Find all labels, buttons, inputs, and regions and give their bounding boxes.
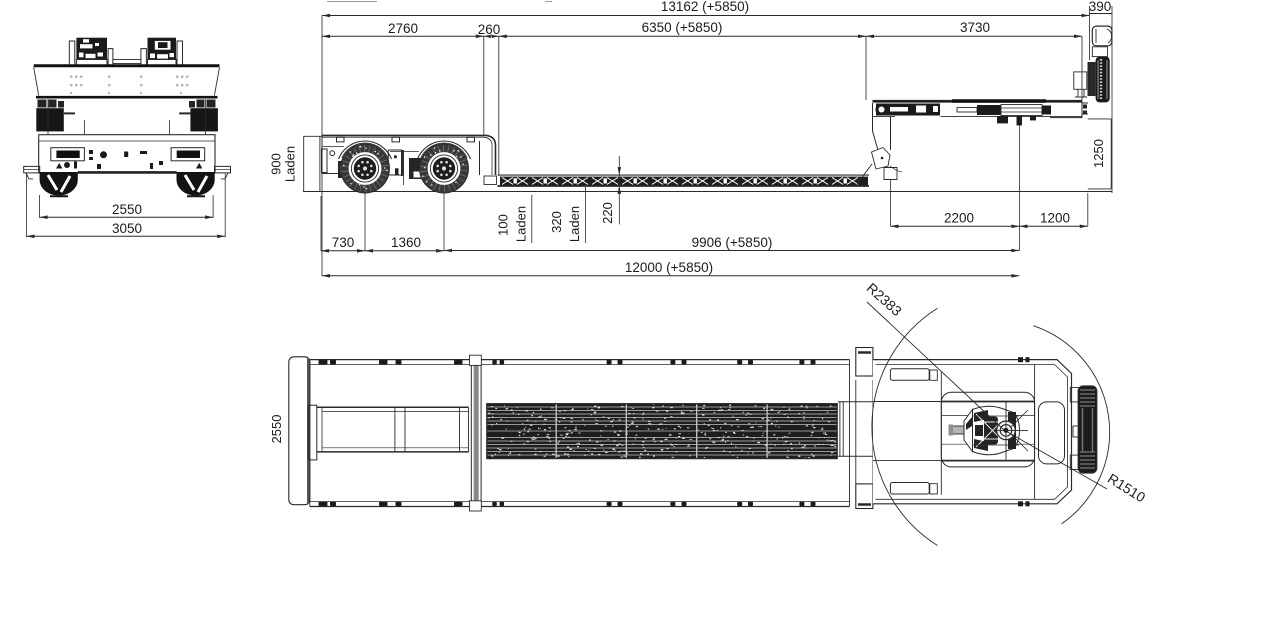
svg-text:100: 100 bbox=[496, 214, 511, 236]
svg-text:2760: 2760 bbox=[388, 21, 418, 36]
svg-text:320: 320 bbox=[549, 211, 564, 233]
svg-text:6350 (+5850): 6350 (+5850) bbox=[642, 20, 723, 35]
svg-text:1200: 1200 bbox=[1040, 211, 1070, 226]
svg-text:13162 (+5850): 13162 (+5850) bbox=[661, 0, 749, 14]
svg-text:Laden: Laden bbox=[567, 206, 582, 242]
svg-text:2200: 2200 bbox=[944, 211, 974, 226]
svg-text:2550: 2550 bbox=[269, 415, 284, 444]
svg-text:1360: 1360 bbox=[391, 235, 421, 250]
svg-text:730: 730 bbox=[332, 235, 355, 250]
svg-text:12000 (+5850): 12000 (+5850) bbox=[625, 260, 713, 275]
svg-text:3730: 3730 bbox=[960, 20, 990, 35]
svg-text:900: 900 bbox=[269, 153, 284, 175]
svg-text:3050: 3050 bbox=[112, 221, 142, 236]
svg-text:220: 220 bbox=[600, 202, 615, 224]
svg-text:1250: 1250 bbox=[1091, 139, 1106, 168]
svg-text:Laden: Laden bbox=[283, 146, 298, 182]
svg-text:9906 (+5850): 9906 (+5850) bbox=[692, 235, 773, 250]
svg-text:260: 260 bbox=[478, 22, 501, 37]
svg-text:2550: 2550 bbox=[112, 202, 142, 217]
svg-text:390: 390 bbox=[1089, 0, 1112, 14]
svg-text:Laden: Laden bbox=[514, 206, 529, 242]
